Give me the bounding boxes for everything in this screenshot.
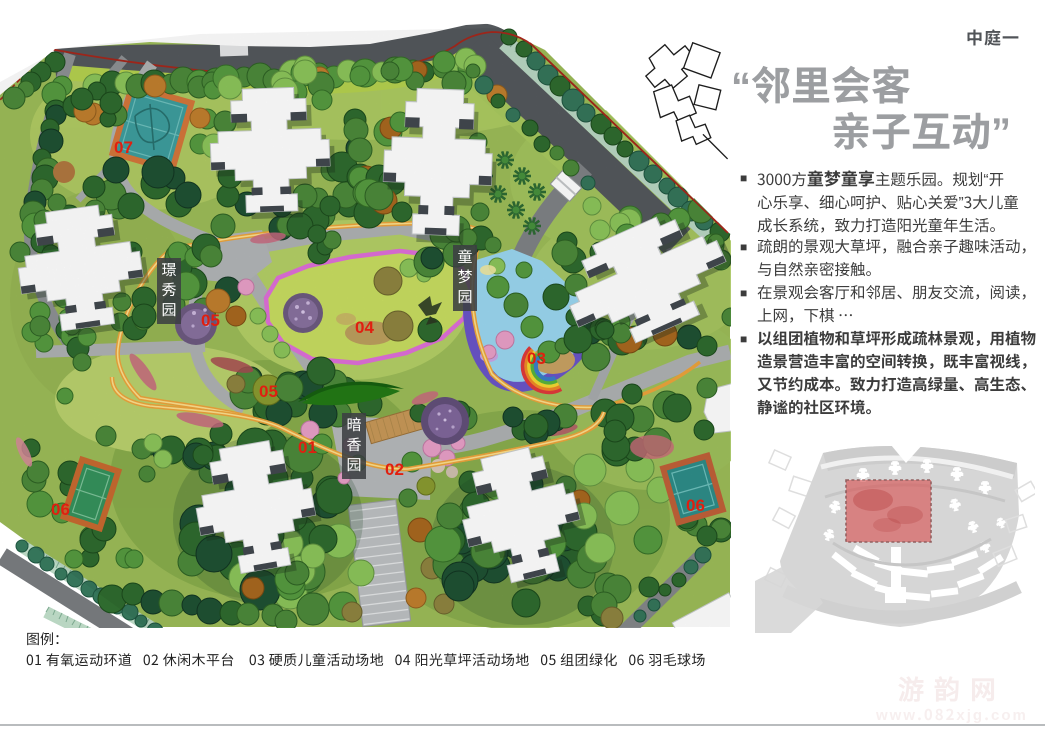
svg-text:05: 05 (259, 382, 278, 401)
svg-text:园: 园 (346, 454, 361, 475)
svg-text:04: 04 (355, 318, 374, 337)
svg-text:03: 03 (527, 349, 546, 368)
svg-text:06: 06 (51, 500, 70, 519)
svg-text:香: 香 (346, 434, 361, 455)
svg-text:童: 童 (457, 246, 472, 267)
svg-text:璟: 璟 (161, 259, 176, 280)
svg-text:秀: 秀 (161, 279, 176, 300)
svg-text:06: 06 (686, 496, 705, 515)
svg-text:园: 园 (457, 286, 472, 307)
svg-text:暗: 暗 (346, 414, 361, 435)
svg-text:01: 01 (298, 438, 317, 457)
svg-text:05: 05 (201, 311, 220, 330)
svg-text:园: 园 (161, 299, 176, 320)
svg-text:02: 02 (385, 460, 404, 479)
svg-text:梦: 梦 (457, 266, 472, 287)
svg-text:07: 07 (114, 138, 133, 157)
